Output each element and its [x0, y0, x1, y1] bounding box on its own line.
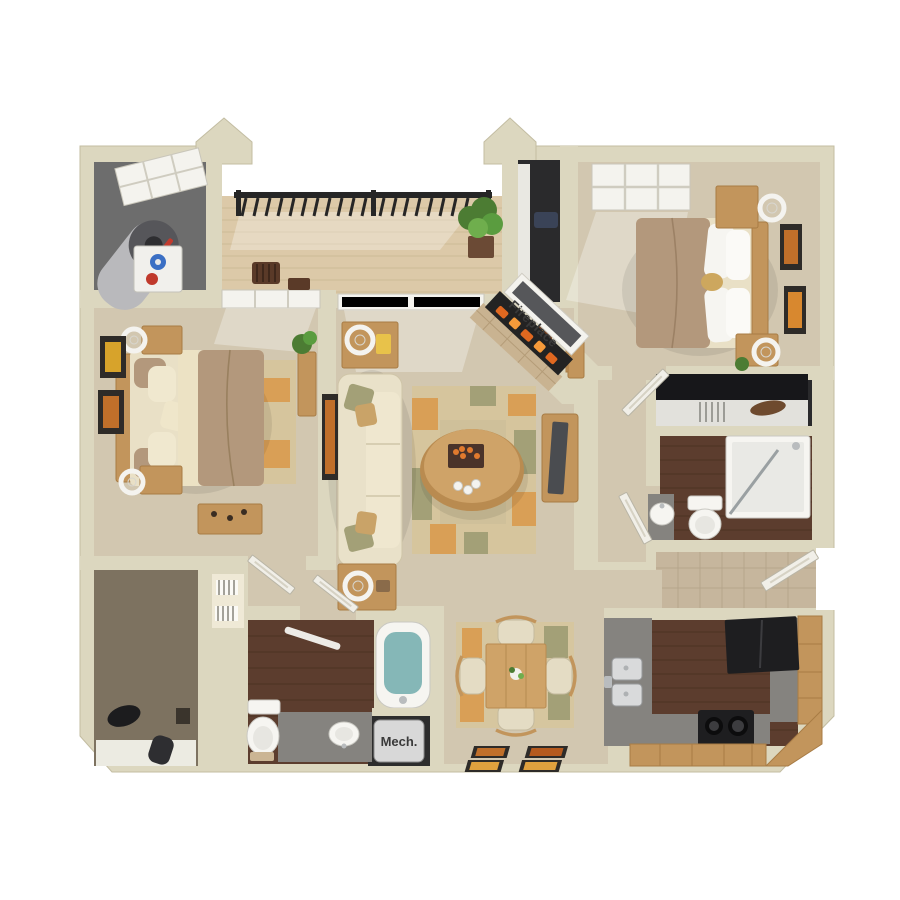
striped-bag	[534, 212, 558, 228]
refrigerator	[725, 616, 800, 674]
furnace-unit	[134, 246, 182, 292]
throw-stripe	[178, 350, 198, 486]
tub-faucet	[399, 696, 407, 704]
shower	[726, 436, 810, 518]
throw-pillow	[354, 402, 378, 427]
floor-plan-render: Fireplace	[0, 0, 900, 900]
end-table-top	[342, 322, 398, 368]
towel-stack	[216, 580, 238, 595]
balcony-sky-opening	[210, 140, 502, 196]
book	[376, 334, 391, 354]
mech-closet: Mech.	[368, 716, 430, 766]
sink	[648, 494, 674, 540]
towel-stack	[215, 606, 238, 621]
front-door-opening	[816, 548, 836, 610]
shoe-box	[176, 708, 190, 724]
sink-faucet	[342, 744, 347, 749]
shower-head	[792, 442, 800, 450]
dresser	[198, 504, 262, 534]
floor-plan-page: Fireplace	[0, 0, 900, 900]
bathtub	[376, 622, 430, 708]
entry-foyer-floor	[656, 548, 816, 610]
closet-shelf	[96, 740, 196, 766]
cabinets-right	[798, 616, 822, 724]
tv-console	[542, 414, 578, 502]
dining-chair	[496, 617, 536, 646]
closet-shelf-dark	[656, 374, 808, 400]
small-plant	[735, 357, 749, 371]
closet-right	[656, 374, 808, 426]
wall-art	[322, 394, 338, 480]
dining-table	[486, 644, 546, 708]
bath-mat	[250, 752, 274, 761]
closet-bottom-left-floor	[94, 570, 198, 767]
nightstand-bottom	[735, 334, 778, 371]
dining-chair	[546, 656, 575, 696]
stove	[698, 710, 754, 749]
accent-pillow	[701, 273, 723, 291]
vanity	[278, 712, 372, 762]
mech-label: Mech.	[381, 734, 418, 749]
patio-side-table	[288, 278, 310, 290]
linen-closet	[212, 574, 244, 628]
faucet	[604, 676, 612, 688]
book	[376, 580, 390, 592]
dining-chair	[457, 656, 486, 696]
toilet	[688, 496, 722, 539]
toilet	[247, 700, 280, 755]
headboard	[752, 222, 768, 346]
throw-pillow	[355, 511, 378, 536]
sofa	[328, 370, 416, 570]
balcony-pillar-left	[196, 118, 252, 164]
